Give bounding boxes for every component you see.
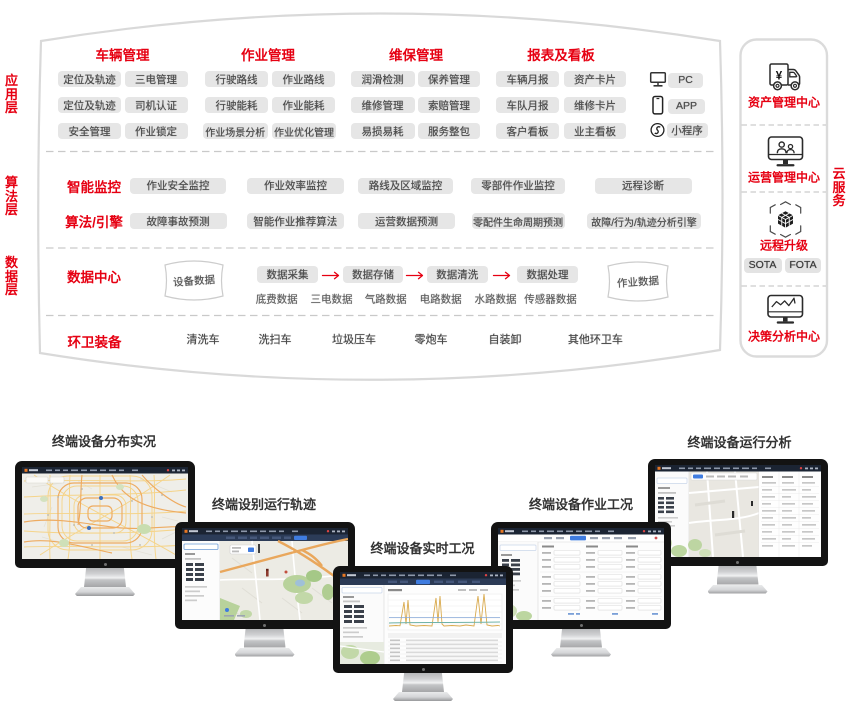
svg-text:¥: ¥ (776, 71, 783, 83)
